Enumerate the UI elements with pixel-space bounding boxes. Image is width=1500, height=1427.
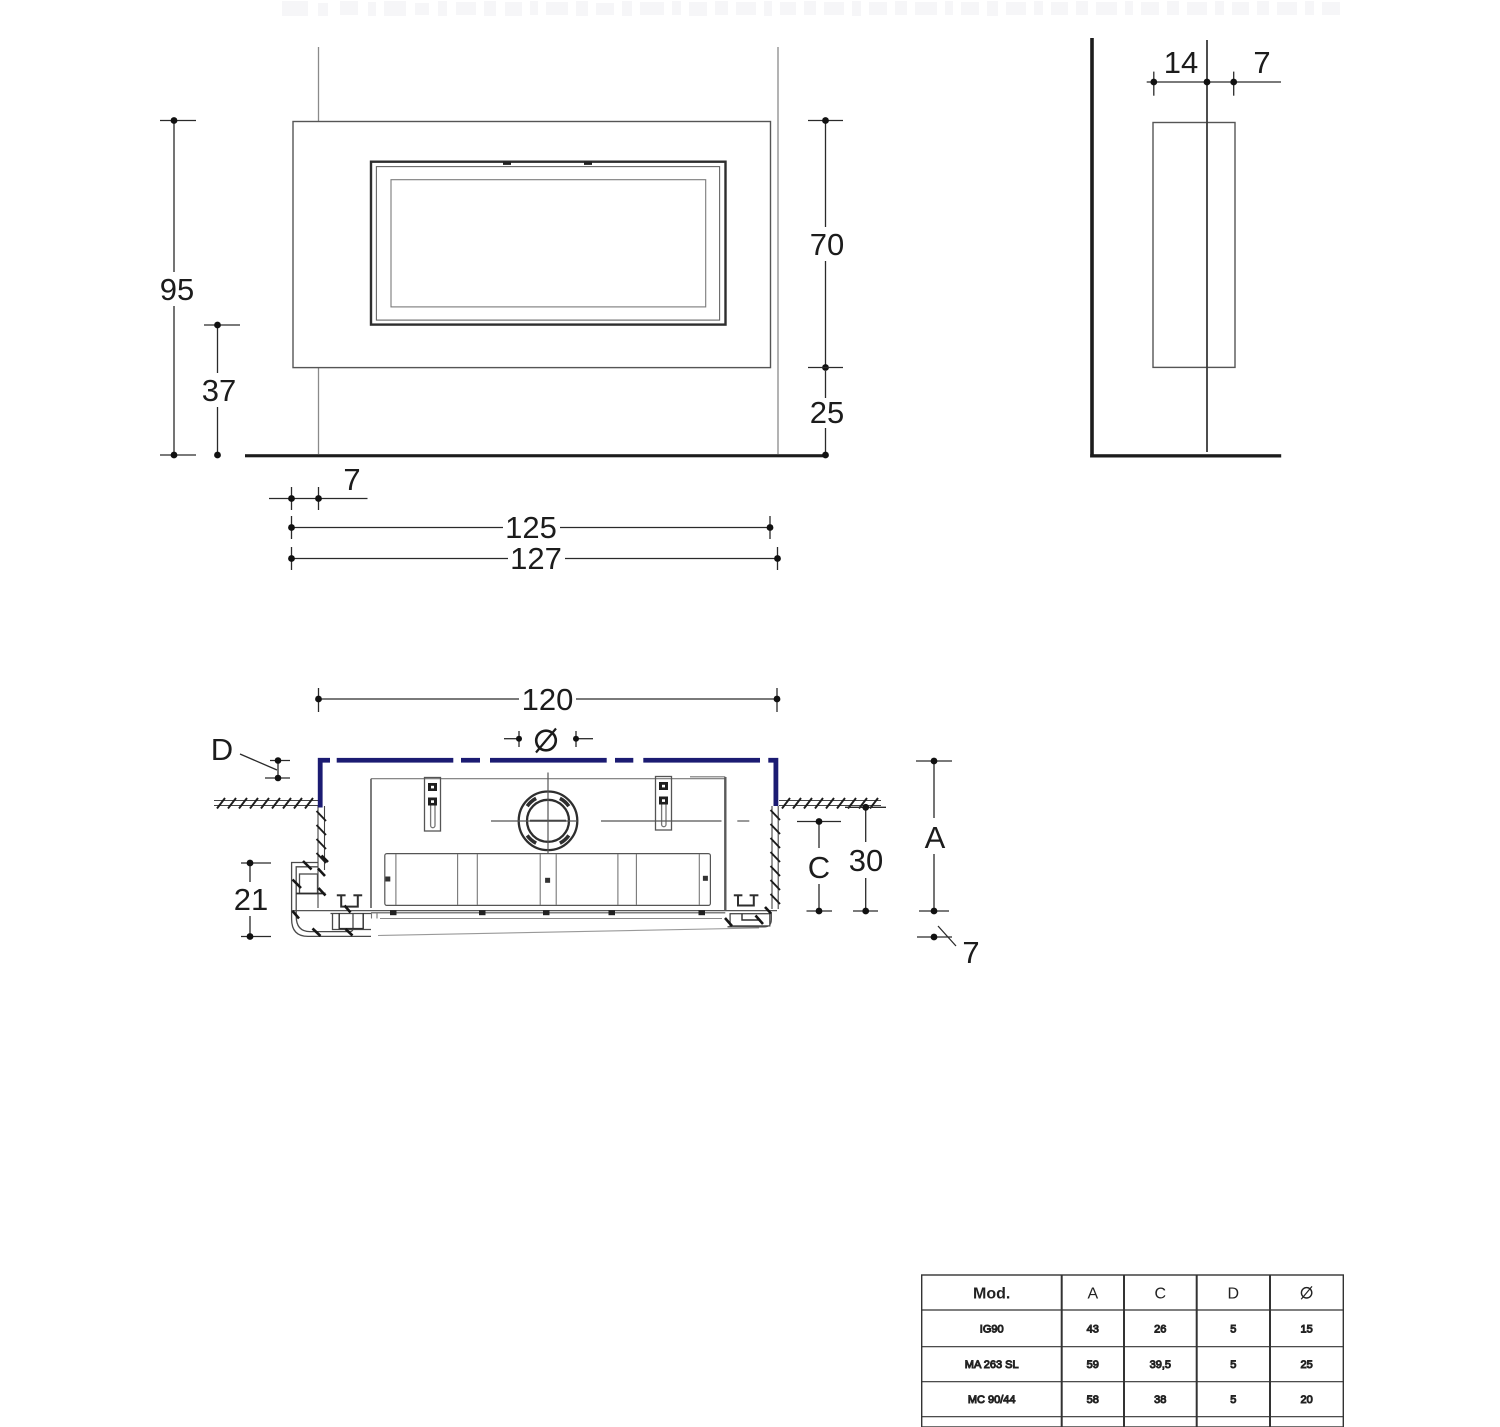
svg-text:5: 5 <box>1230 1394 1236 1406</box>
svg-text:30: 30 <box>849 843 883 878</box>
svg-text:26: 26 <box>1154 1324 1166 1336</box>
svg-text:IG90: IG90 <box>980 1324 1004 1336</box>
svg-text:25: 25 <box>810 395 844 430</box>
svg-text:58: 58 <box>1087 1394 1099 1406</box>
svg-text:14: 14 <box>1164 45 1198 80</box>
svg-text:125: 125 <box>505 510 557 545</box>
svg-text:Mod.: Mod. <box>973 1286 1010 1303</box>
svg-text:120: 120 <box>522 682 574 717</box>
svg-text:127: 127 <box>510 541 562 576</box>
svg-text:7: 7 <box>962 935 979 970</box>
svg-text:20: 20 <box>1300 1394 1312 1406</box>
svg-text:21: 21 <box>234 882 268 917</box>
svg-text:MA 263 SL: MA 263 SL <box>965 1359 1019 1371</box>
svg-text:37: 37 <box>202 373 236 408</box>
svg-text:7: 7 <box>343 462 360 497</box>
svg-text:59: 59 <box>1087 1359 1099 1371</box>
svg-text:70: 70 <box>810 227 844 262</box>
svg-text:5: 5 <box>1230 1324 1236 1336</box>
svg-text:39,5: 39,5 <box>1150 1359 1171 1371</box>
svg-text:D: D <box>1228 1286 1240 1303</box>
svg-text:C: C <box>1155 1286 1167 1303</box>
svg-text:7: 7 <box>1253 45 1270 80</box>
svg-text:5: 5 <box>1230 1359 1236 1371</box>
svg-text:25: 25 <box>1300 1359 1312 1371</box>
svg-text:C: C <box>808 850 830 885</box>
svg-text:15: 15 <box>1300 1324 1312 1336</box>
svg-text:38: 38 <box>1154 1394 1166 1406</box>
svg-text:95: 95 <box>160 272 194 307</box>
svg-text:43: 43 <box>1087 1324 1099 1336</box>
svg-text:D: D <box>211 732 233 767</box>
svg-text:A: A <box>1087 1286 1098 1303</box>
svg-text:A: A <box>925 820 946 855</box>
svg-text:MC 90/44: MC 90/44 <box>968 1394 1016 1406</box>
